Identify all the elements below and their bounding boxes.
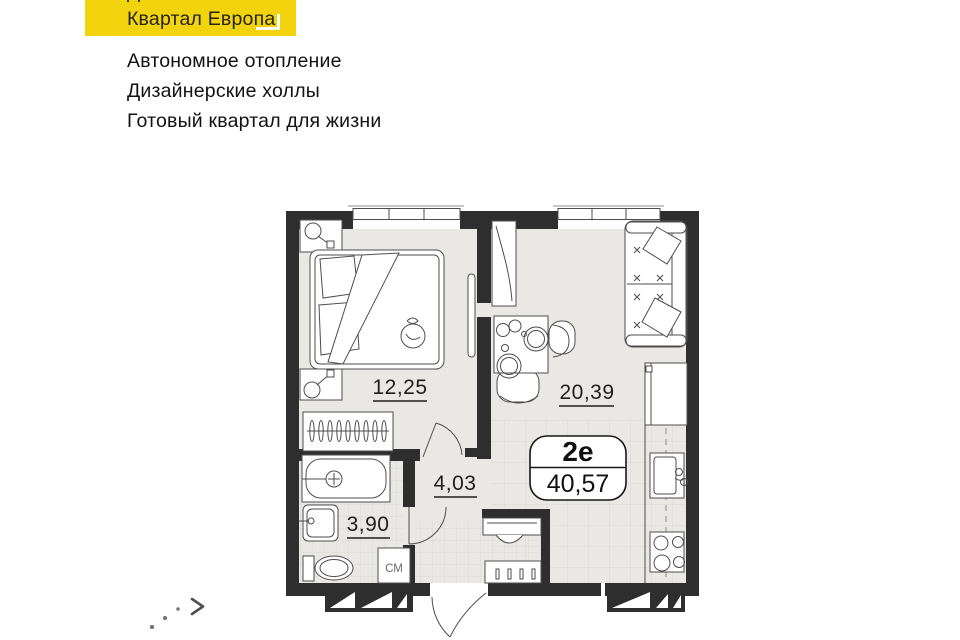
fridge — [645, 363, 687, 425]
stove — [650, 532, 685, 572]
area-label-bathroom: 3,90 — [347, 513, 390, 538]
svg-text:20,39: 20,39 — [559, 381, 614, 404]
closet-hangers — [303, 412, 393, 451]
bathtub — [302, 455, 390, 502]
floor-plan: СМ 12,25 20,39 4,03 3,90 — [0, 0, 960, 640]
nightstand-lamp — [300, 220, 342, 252]
entrance-door-arc — [432, 593, 486, 637]
apartment-type: 2е — [562, 436, 593, 467]
toilet — [303, 556, 353, 581]
kitchen-sink — [650, 453, 688, 498]
wardrobe — [492, 221, 516, 306]
bathroom-sink — [299, 505, 338, 541]
svg-text:12,25: 12,25 — [372, 376, 427, 399]
nightstand-lamp — [300, 369, 342, 400]
svg-text:4,03: 4,03 — [434, 472, 477, 495]
apartment-type-badge: 2е 40,57 — [530, 436, 626, 500]
sliding-glass-door — [468, 274, 475, 357]
dot-trail — [150, 607, 180, 629]
window-icon — [553, 206, 664, 220]
area-label-bedroom: 12,25 — [372, 376, 427, 401]
listing-card: Дом № 40 Квартал Европа Автономное отопл… — [0, 0, 960, 640]
shoe-bench — [485, 561, 541, 583]
washing-machine-label: СМ — [385, 563, 403, 575]
window-icon — [348, 206, 464, 220]
next-arrow-icon[interactable] — [192, 599, 203, 614]
area-label-living: 20,39 — [559, 381, 615, 406]
area-label-hallway: 4,03 — [434, 472, 477, 497]
bed — [310, 250, 444, 369]
sofa — [625, 221, 687, 347]
apartment-total-area: 40,57 — [547, 470, 610, 498]
washing-machine: СМ — [378, 548, 410, 583]
svg-text:3,90: 3,90 — [347, 513, 390, 536]
